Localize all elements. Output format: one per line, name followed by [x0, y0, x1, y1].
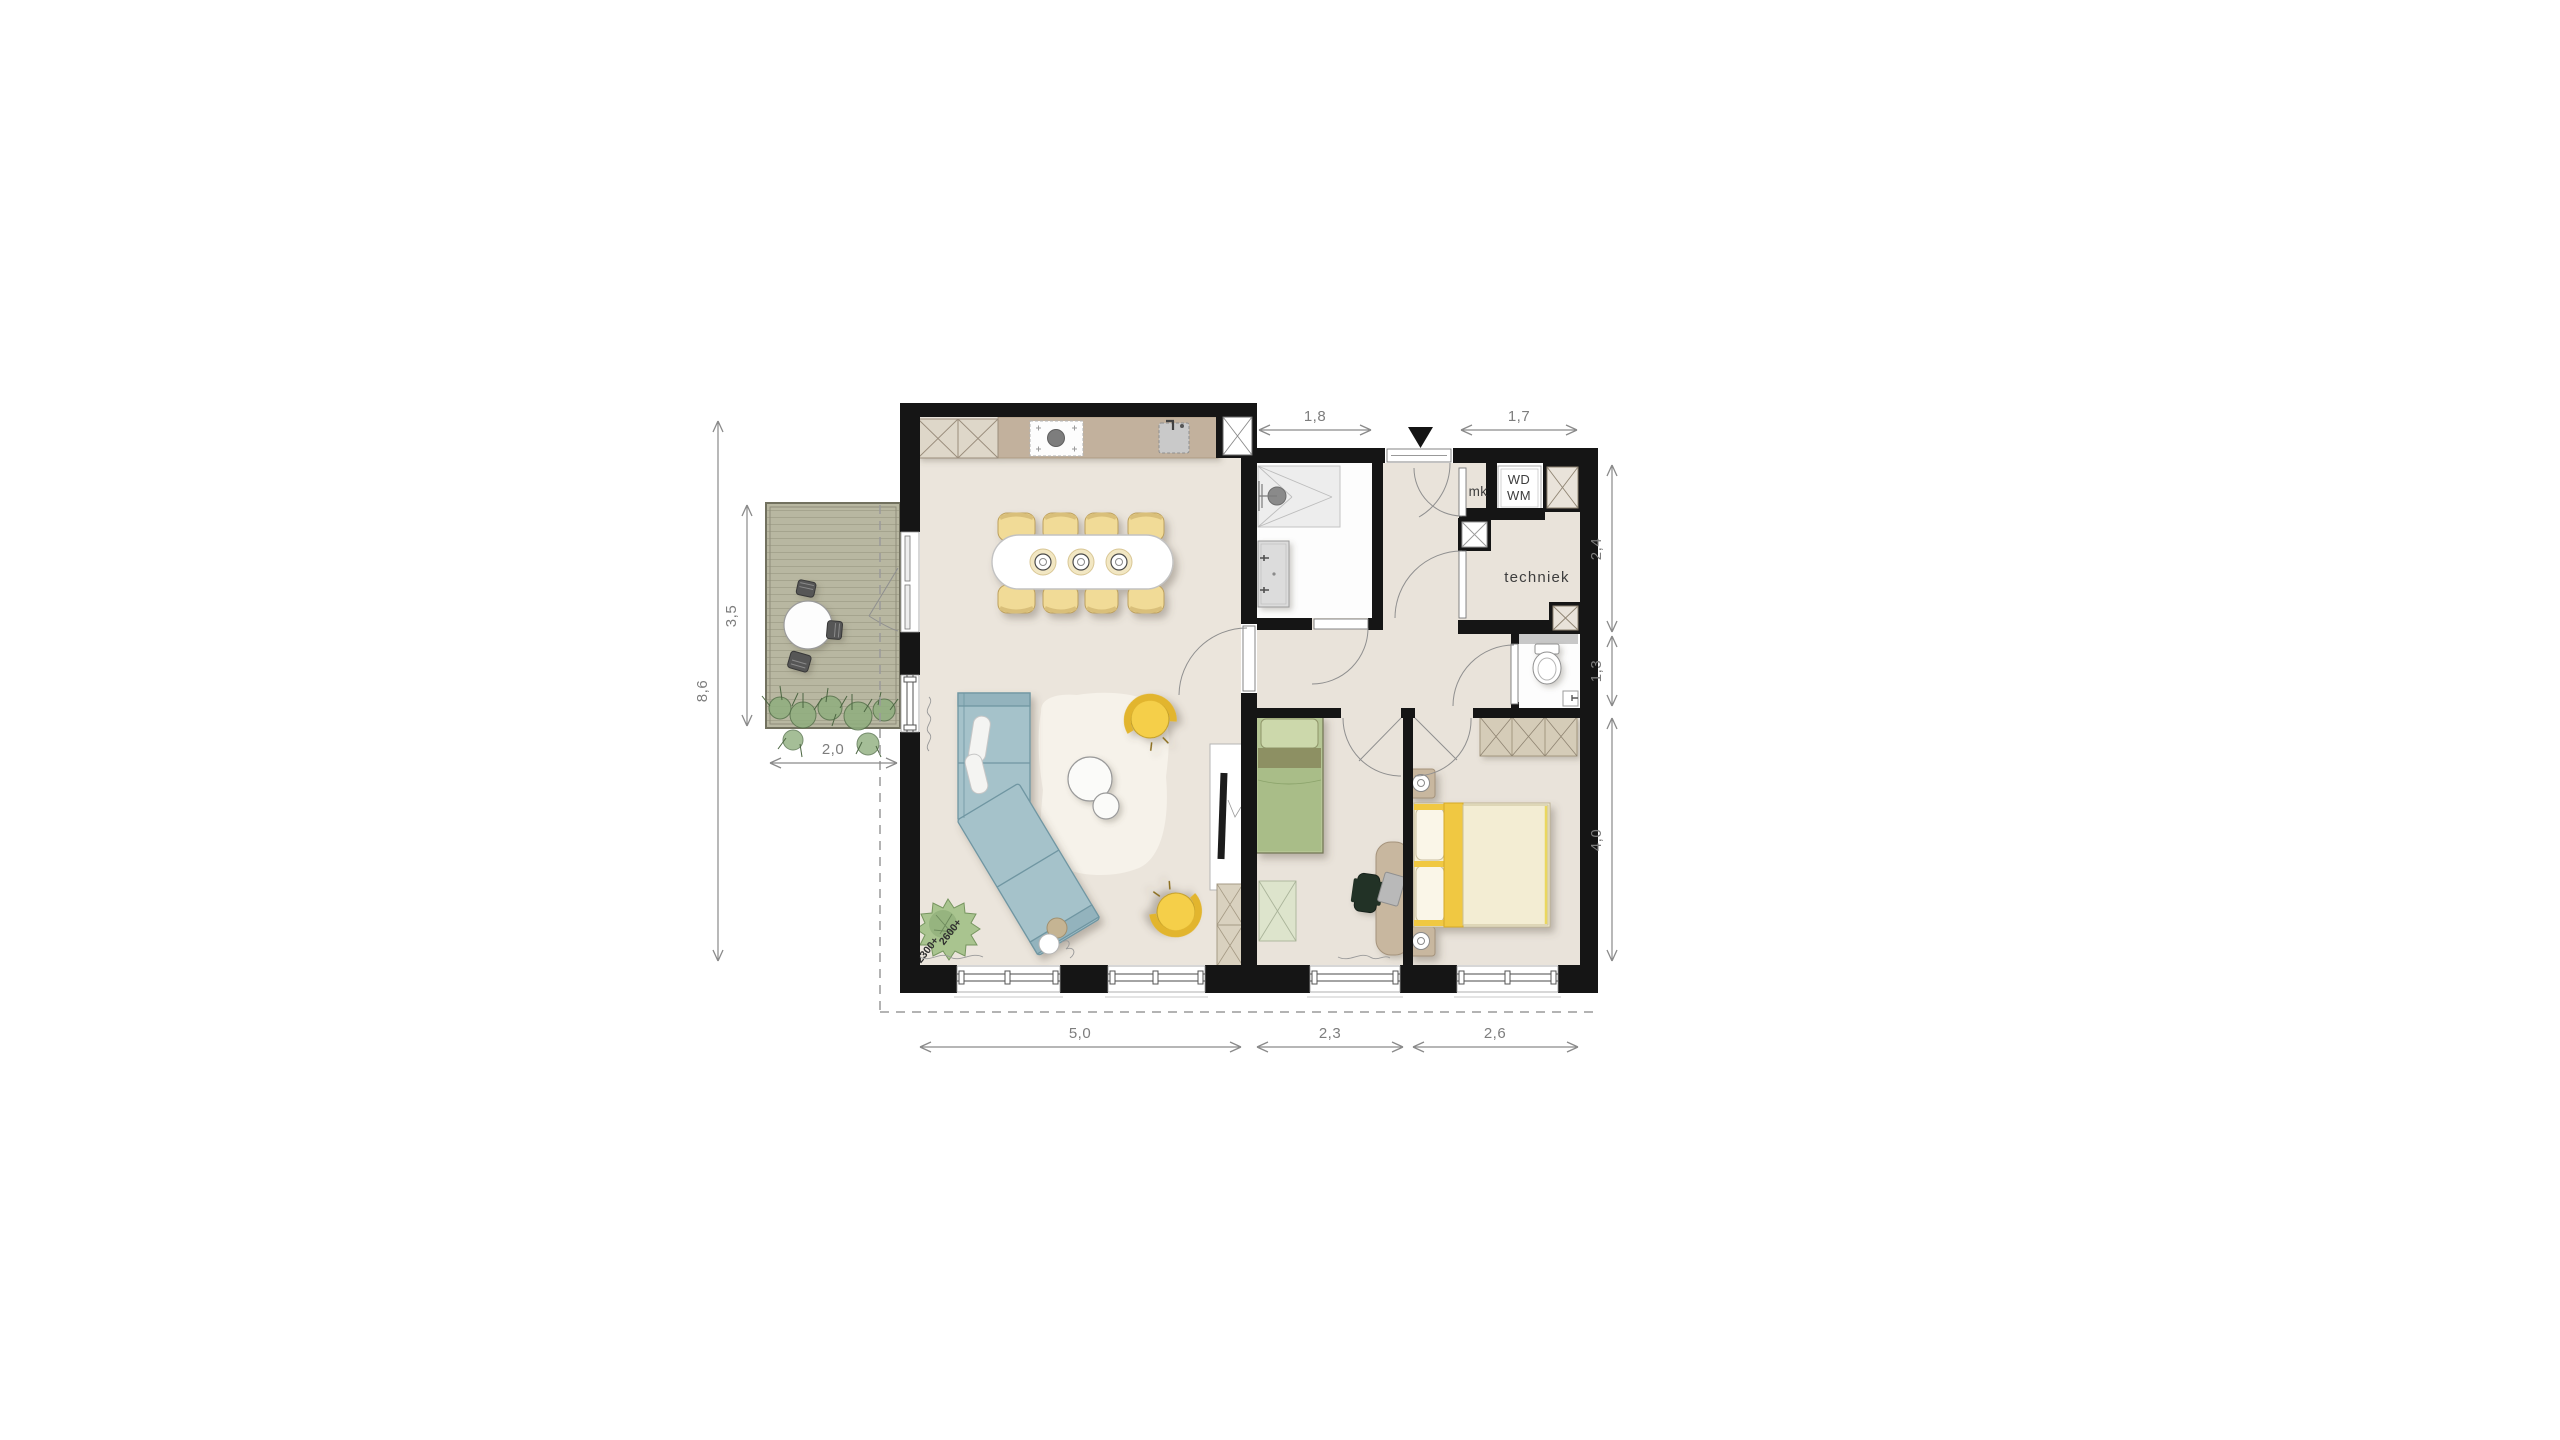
- window: [1105, 966, 1208, 997]
- bed-runner: [1444, 803, 1463, 927]
- dim-balcony-height: 3,5: [723, 605, 740, 627]
- bed-blanket: [1258, 768, 1321, 851]
- washer-label: WD: [1508, 472, 1530, 487]
- balcony-chair: [826, 620, 843, 639]
- shaft-top-right: [1547, 467, 1578, 508]
- bedroom1-rug: [1259, 881, 1296, 941]
- wardrobe: [1480, 717, 1577, 756]
- dryer-label: WM: [1507, 488, 1531, 503]
- washer-dryer: WD WM: [1498, 466, 1541, 510]
- tv-side-cabinet: [1217, 884, 1243, 966]
- window: [901, 675, 919, 732]
- window: [1307, 966, 1403, 997]
- bed-duvet: [1463, 805, 1548, 925]
- cooktop: [1030, 421, 1083, 456]
- window: [954, 966, 1063, 997]
- entrance-marker-icon: [1408, 427, 1433, 448]
- kitchen-tall-cabinets: [918, 419, 998, 458]
- dim-bedroom2-width: 2,6: [1484, 1025, 1506, 1042]
- bed-pillow: [1261, 719, 1318, 748]
- dim-bedroom-height: 4,0: [1588, 829, 1605, 851]
- dim-bathroom-width: 1,8: [1304, 408, 1326, 425]
- bathroom-sink: [1258, 541, 1289, 607]
- balcony-table: [784, 601, 832, 649]
- bed-headband: [1258, 748, 1321, 768]
- table-centerpieces: [1030, 549, 1132, 575]
- dim-bedroom1-width: 2,3: [1319, 1025, 1341, 1042]
- techniek-label: techniek: [1504, 569, 1569, 586]
- dim-hall-zone-height: 2,4: [1588, 538, 1605, 560]
- tv-cabinet: [1210, 744, 1242, 890]
- bed-pillow: [1416, 808, 1444, 860]
- column-shaft: [1223, 417, 1252, 455]
- dim-storage-width: 1,7: [1508, 408, 1530, 425]
- dim-overall-height: 8,6: [694, 680, 711, 702]
- mk-label: mk: [1469, 484, 1488, 499]
- floorplan-page: 2600+ 2300+: [0, 0, 2560, 1440]
- kitchen-sink: [1159, 421, 1189, 453]
- toilet-shelf: [1518, 634, 1578, 644]
- toilet-hand-basin: [1563, 691, 1578, 706]
- balcony-chair: [796, 579, 817, 597]
- kitchen: [918, 417, 1218, 458]
- shaft-hall: [1462, 522, 1487, 547]
- window: [1454, 966, 1561, 997]
- dim-living-width: 5,0: [1069, 1025, 1091, 1042]
- floorplan-drawing: 2600+ 2300+: [0, 0, 2560, 1440]
- dim-balcony-width: 2,0: [822, 741, 844, 758]
- living-room-floor: [920, 417, 1241, 965]
- lamp: [1413, 775, 1430, 792]
- bed-pillow: [1416, 866, 1444, 922]
- lamp: [1413, 933, 1430, 950]
- shower: [1258, 466, 1340, 527]
- dim-toilet-height: 1,3: [1588, 660, 1605, 682]
- shaft-techniek: [1553, 606, 1578, 630]
- single-bed: [1256, 715, 1323, 853]
- toilet: [1533, 644, 1561, 684]
